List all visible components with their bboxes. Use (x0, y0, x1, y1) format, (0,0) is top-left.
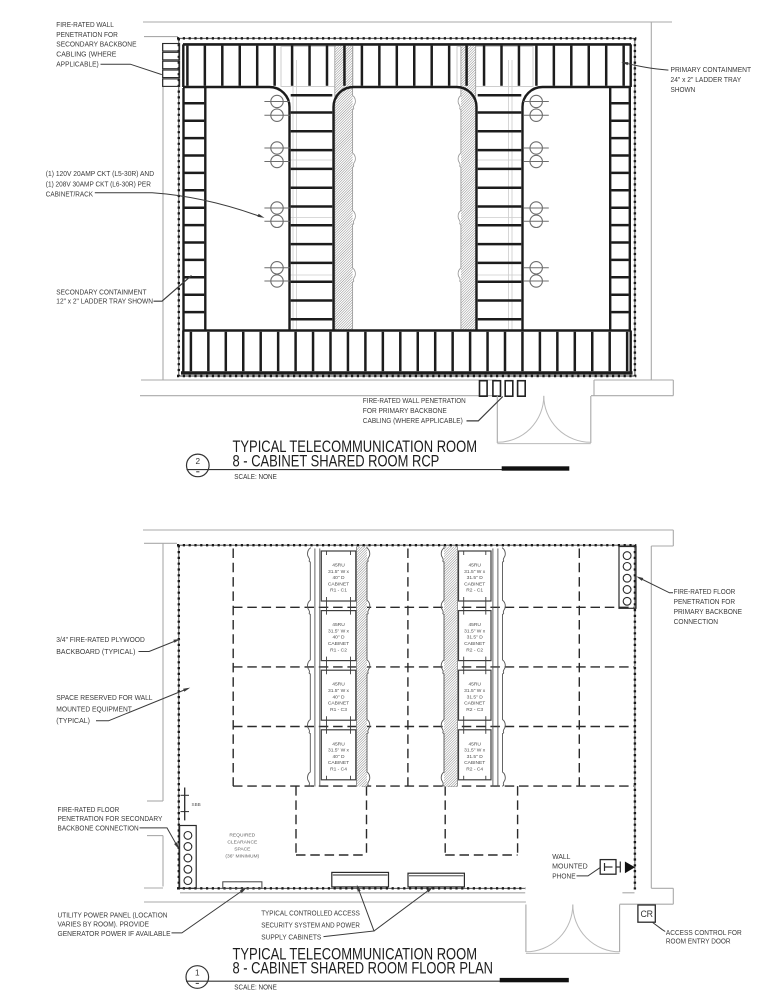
svg-text:SCALE: NONE: SCALE: NONE (234, 985, 277, 992)
svg-text:PENETRATION FOR: PENETRATION FOR (56, 32, 118, 39)
svg-text:(TYPICAL): (TYPICAL) (56, 718, 90, 725)
svg-text:31.5" W x: 31.5" W x (328, 569, 350, 575)
svg-text:PENETRATION FOR: PENETRATION FOR (674, 599, 736, 606)
svg-text:ROOM ENTRY DOOR: ROOM ENTRY DOOR (666, 938, 731, 945)
svg-text:FIRE-RATED WALL PENETRATION: FIRE-RATED WALL PENETRATION (363, 398, 466, 405)
svg-text:CABINET: CABINET (464, 701, 485, 707)
svg-text:GENERATOR POWER IF AVAILABLE: GENERATOR POWER IF AVAILABLE (58, 931, 171, 938)
svg-text:SPACE: SPACE (234, 847, 251, 853)
svg-text:R1 - C4: R1 - C4 (330, 767, 347, 773)
svg-text:SUPPLY CABINETS: SUPPLY CABINETS (261, 934, 321, 941)
svg-text:SPACE RESERVED FOR WALL: SPACE RESERVED FOR WALL (56, 695, 152, 702)
svg-text:R1 - C2: R1 - C2 (330, 647, 347, 653)
svg-text:SHOWN: SHOWN (671, 87, 696, 94)
svg-text:R1 - C1: R1 - C1 (330, 588, 347, 594)
svg-text:31.5" W x: 31.5" W x (464, 688, 486, 694)
svg-text:MOUNTED EQUIPMENT: MOUNTED EQUIPMENT (56, 707, 132, 714)
svg-text:45RU: 45RU (468, 682, 481, 688)
svg-text:31.5" D: 31.5" D (467, 754, 484, 760)
svg-text:VARIES BY ROOM). PROVIDE: VARIES BY ROOM). PROVIDE (58, 922, 150, 929)
svg-text:PHONE: PHONE (552, 874, 576, 881)
svg-text:(1) 120V 20AMP CKT (L5-30R) A: (1) 120V 20AMP CKT (L5-30R) AND (46, 171, 154, 178)
svg-text:SECONDARY BACKBONE: SECONDARY BACKBONE (56, 42, 137, 49)
svg-text:24" x 2" LADDER TRAY: 24" x 2" LADDER TRAY (671, 77, 742, 84)
svg-text:(1) 208V 30AMP CKT (L6-30R) PE: (1) 208V 30AMP CKT (L6-30R) PER (46, 181, 151, 188)
svg-text:CABINET/RACK: CABINET/RACK (46, 192, 93, 199)
svg-text:FIRE-RATED FLOOR: FIRE-RATED FLOOR (674, 589, 736, 596)
svg-text:R2 - C1: R2 - C1 (466, 588, 483, 594)
svg-text:R2 - C2: R2 - C2 (466, 647, 483, 653)
svg-text:31.5" W x: 31.5" W x (328, 628, 350, 634)
svg-text:CABLING (WHERE: CABLING (WHERE (56, 52, 116, 59)
svg-text:(36" MINIMUM): (36" MINIMUM) (225, 854, 259, 860)
svg-text:CABINET: CABINET (328, 760, 349, 766)
svg-text:APPLICABLE): APPLICABLE) (56, 61, 98, 68)
svg-text:FOR PRIMARY BACKBONE: FOR PRIMARY BACKBONE (363, 408, 447, 415)
svg-text:1: 1 (195, 968, 200, 977)
svg-text:8 - CABINET SHARED ROOM RCP: 8 - CABINET SHARED ROOM RCP (233, 453, 440, 471)
svg-text:40" D: 40" D (332, 575, 345, 581)
svg-text:CABLING (WHERE APPLICABLE): CABLING (WHERE APPLICABLE) (363, 418, 463, 425)
svg-text:REQUIRED: REQUIRED (229, 833, 255, 839)
svg-text:PENETRATION FOR SECONDARY: PENETRATION FOR SECONDARY (58, 816, 163, 823)
svg-text:12" x 2" LADDER TRAY SHOWN: 12" x 2" LADDER TRAY SHOWN (56, 299, 153, 306)
svg-text:31.5" W x: 31.5" W x (464, 628, 486, 634)
svg-text:40" D: 40" D (332, 754, 345, 760)
svg-text:CABINET: CABINET (328, 701, 349, 707)
svg-text:45RU: 45RU (332, 622, 345, 628)
svg-text:SECURITY SYSTEM AND POWER: SECURITY SYSTEM AND POWER (261, 922, 360, 929)
svg-text:R2 - C3: R2 - C3 (466, 707, 483, 713)
svg-text:BACKBOARD (TYPICAL): BACKBOARD (TYPICAL) (56, 649, 135, 656)
svg-text:UTILITY POWER PANEL (LOCATION: UTILITY POWER PANEL (LOCATION (58, 912, 168, 919)
svg-text:FIRE-RATED FLOOR: FIRE-RATED FLOOR (58, 807, 120, 814)
svg-text:31.5" W x: 31.5" W x (328, 748, 350, 754)
svg-text:CABINET: CABINET (464, 581, 485, 587)
svg-text:R2 - C4: R2 - C4 (466, 767, 483, 773)
svg-text:31.5" W x: 31.5" W x (464, 569, 486, 575)
svg-text:8 - CABINET SHARED ROOM FLOOR: 8 - CABINET SHARED ROOM FLOOR PLAN (233, 960, 494, 978)
svg-text:ACCESS CONTROL FOR: ACCESS CONTROL FOR (666, 930, 742, 937)
svg-text:FIRE-RATED WALL: FIRE-RATED WALL (56, 22, 114, 29)
svg-text:CONNECTION: CONNECTION (674, 619, 718, 626)
svg-text:31.5" D: 31.5" D (467, 575, 484, 581)
svg-text:SECONDARY CONTAINMENT: SECONDARY CONTAINMENT (56, 290, 147, 297)
svg-text:2: 2 (196, 457, 201, 466)
svg-text:45RU: 45RU (332, 741, 345, 747)
svg-text:PRIMARY CONTAINMENT: PRIMARY CONTAINMENT (671, 67, 752, 74)
svg-text:31.5" D: 31.5" D (467, 635, 484, 641)
svg-text:CR: CR (640, 909, 652, 919)
svg-text:CLEARANCE: CLEARANCE (227, 840, 258, 846)
svg-text:MOUNTED: MOUNTED (552, 864, 588, 871)
svg-text:31.5" W x: 31.5" W x (328, 688, 350, 694)
svg-text:45RU: 45RU (332, 563, 345, 569)
svg-text:BACKBONE CONNECTION: BACKBONE CONNECTION (58, 825, 139, 832)
svg-text:SCALE: NONE: SCALE: NONE (234, 474, 277, 481)
svg-text:31.5" D: 31.5" D (467, 694, 484, 700)
svg-text:45RU: 45RU (332, 682, 345, 688)
svg-text:R1 - C3: R1 - C3 (330, 707, 347, 713)
svg-text:TYPICAL CONTROLLED ACCESS: TYPICAL CONTROLLED ACCESS (261, 911, 360, 918)
svg-text:CABINET: CABINET (328, 581, 349, 587)
svg-text:45RU: 45RU (468, 563, 481, 569)
svg-text:CABINET: CABINET (464, 760, 485, 766)
svg-text:WALL: WALL (552, 854, 570, 861)
svg-text:31.5" W x: 31.5" W x (464, 748, 486, 754)
svg-text:SBB: SBB (192, 802, 201, 807)
svg-text:45RU: 45RU (468, 622, 481, 628)
svg-text:3/4" FIRE-RATED PLYWOOD: 3/4" FIRE-RATED PLYWOOD (56, 637, 145, 644)
svg-text:45RU: 45RU (468, 741, 481, 747)
svg-text:40" D: 40" D (332, 635, 345, 641)
svg-text:CABINET: CABINET (464, 641, 485, 647)
svg-text:40" D: 40" D (332, 694, 345, 700)
svg-text:PRIMARY BACKBONE: PRIMARY BACKBONE (674, 609, 743, 616)
svg-text:CABINET: CABINET (328, 641, 349, 647)
